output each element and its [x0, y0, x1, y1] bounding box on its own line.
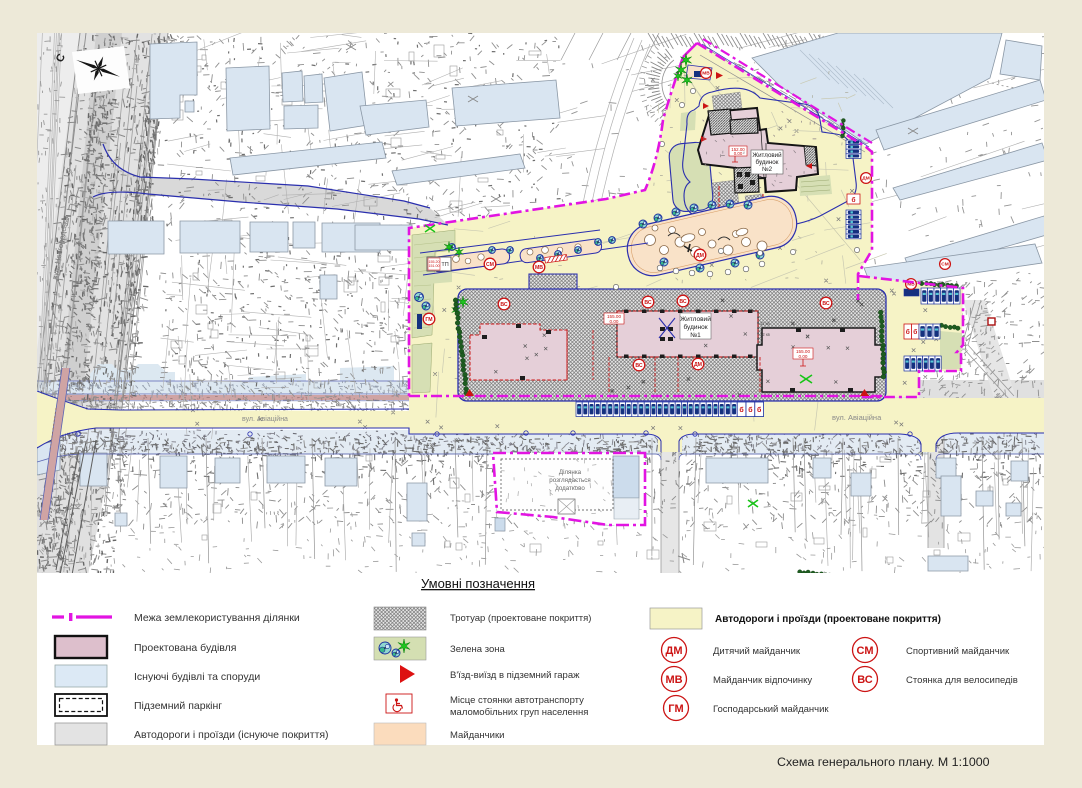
svg-text:будинок: будинок: [756, 159, 779, 166]
svg-text:ВС: ВС: [635, 363, 643, 369]
svg-text:будинок: будинок: [683, 323, 707, 331]
svg-text:Проектована будівля: Проектована будівля: [134, 642, 236, 654]
svg-text:Межа землекористування ділянки: Межа землекористування ділянки: [134, 612, 300, 624]
svg-text:ВС: ВС: [679, 299, 687, 305]
svg-text:Умовні позначення: Умовні позначення: [421, 576, 535, 591]
svg-text:МВ: МВ: [665, 674, 682, 686]
svg-text:СМ: СМ: [486, 262, 494, 268]
svg-text:б: б: [906, 328, 910, 336]
svg-text:Дитячий майданчик: Дитячий майданчик: [713, 646, 801, 657]
svg-text:0.00: 0.00: [799, 354, 808, 359]
svg-text:№1: №1: [690, 332, 701, 339]
svg-text:Житловий: Житловий: [680, 315, 711, 323]
svg-text:Існуючі будівлі та споруди: Існуючі будівлі та споруди: [134, 671, 260, 683]
svg-text:б: б: [748, 406, 753, 414]
svg-text:маломобільних груп населення: маломобільних груп населення: [450, 707, 588, 718]
svg-text:Ділянка: Ділянка: [559, 469, 582, 476]
svg-text:Стоянка для велосипедів: Стоянка для велосипедів: [906, 675, 1018, 686]
svg-text:ГМ: ГМ: [425, 317, 432, 323]
svg-text:вул. Авіаційна: вул. Авіаційна: [242, 415, 288, 423]
svg-text:Тротуар (проектоване покриття): Тротуар (проектоване покриття): [450, 613, 591, 624]
svg-text:ВС: ВС: [822, 301, 830, 307]
svg-text:СМ: СМ: [857, 645, 874, 657]
svg-text:ТП: ТП: [441, 262, 448, 268]
svg-text:б: б: [851, 196, 855, 204]
svg-text:б: б: [757, 406, 762, 414]
svg-text:вул. Авіаційна: вул. Авіаційна: [832, 413, 882, 422]
svg-text:МВ: МВ: [702, 71, 710, 77]
svg-text:Спортивний майданчик: Спортивний майданчик: [906, 646, 1010, 657]
svg-text:б: б: [739, 406, 744, 414]
svg-text:ДМ: ДМ: [666, 645, 683, 657]
svg-text:СМ: СМ: [941, 262, 948, 268]
svg-text:б: б: [913, 328, 917, 336]
svg-text:151.00: 151.00: [429, 264, 440, 268]
svg-text:Майданчик відпочинку: Майданчик відпочинку: [713, 675, 812, 686]
svg-text:ДМ: ДМ: [694, 362, 702, 368]
svg-text:додатково: додатково: [555, 485, 585, 492]
svg-text:ВС: ВС: [644, 300, 652, 306]
svg-text:Підземний паркінг: Підземний паркінг: [134, 700, 222, 712]
svg-text:11 кв: 11 кв: [760, 321, 770, 326]
svg-text:0.00: 0.00: [610, 319, 619, 324]
svg-text:Автодороги і проїзди (проектов: Автодороги і проїзди (проектоване покрит…: [715, 614, 941, 625]
svg-text:0.00: 0.00: [734, 151, 743, 156]
svg-text:№2: №2: [762, 166, 773, 173]
svg-text:Схема генерального плану. М 1: Схема генерального плану. М 1:1000: [777, 755, 990, 769]
svg-text:Майданчики: Майданчики: [450, 730, 504, 741]
svg-text:Житловий: Житловий: [752, 152, 782, 159]
svg-text:ДМ: ДМ: [696, 253, 704, 259]
svg-text:Місце стоянки автотранспорту: Місце стоянки автотранспорту: [450, 695, 584, 706]
svg-text:Господарський майданчик: Господарський майданчик: [713, 704, 829, 715]
svg-text:12 кв: 12 кв: [760, 332, 771, 337]
svg-text:МВ: МВ: [535, 265, 543, 271]
svg-text:ВС: ВС: [500, 302, 508, 308]
svg-text:Автодороги і проїзди (існуюче: Автодороги і проїзди (існуюче покриття): [134, 729, 329, 741]
svg-text:ДМ: ДМ: [862, 176, 869, 182]
svg-text:ВС: ВС: [857, 674, 873, 686]
svg-text:ГМ: ГМ: [668, 703, 683, 715]
svg-text:В'їзд-виїзд в підземний гараж: В'їзд-виїзд в підземний гараж: [450, 670, 580, 681]
svg-text:розглядається: розглядається: [549, 477, 590, 484]
svg-text:Зелена зона: Зелена зона: [450, 644, 505, 655]
